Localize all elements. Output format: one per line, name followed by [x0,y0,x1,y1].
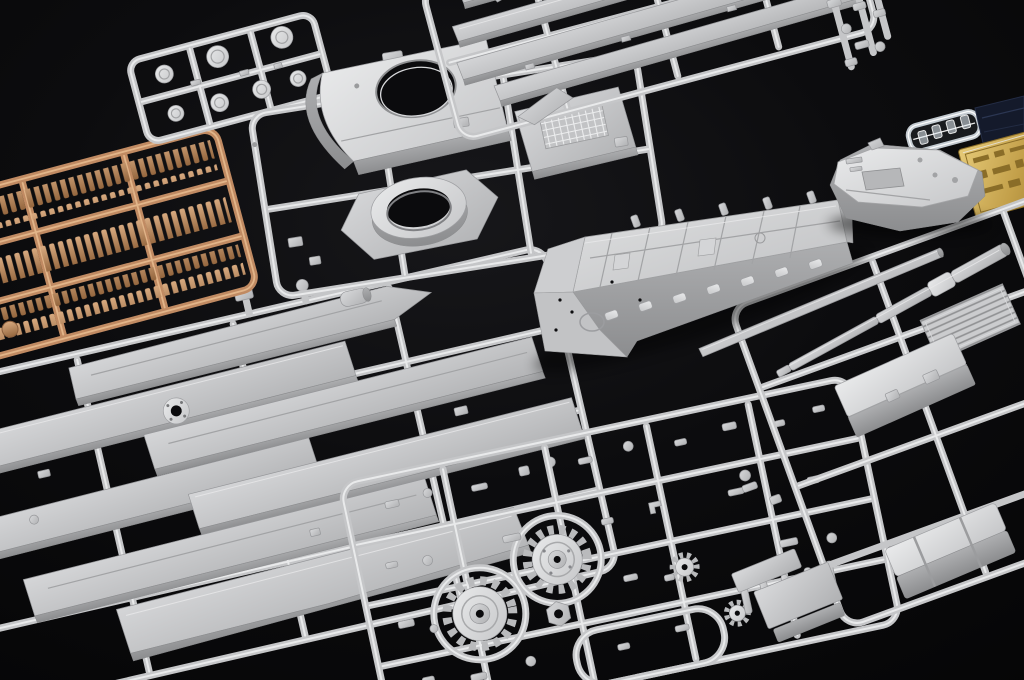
model-kit-photo [0,0,1024,680]
small-part [288,236,303,247]
photo-stage [0,0,1024,680]
turret-opening [862,168,904,190]
small-part [309,256,321,266]
